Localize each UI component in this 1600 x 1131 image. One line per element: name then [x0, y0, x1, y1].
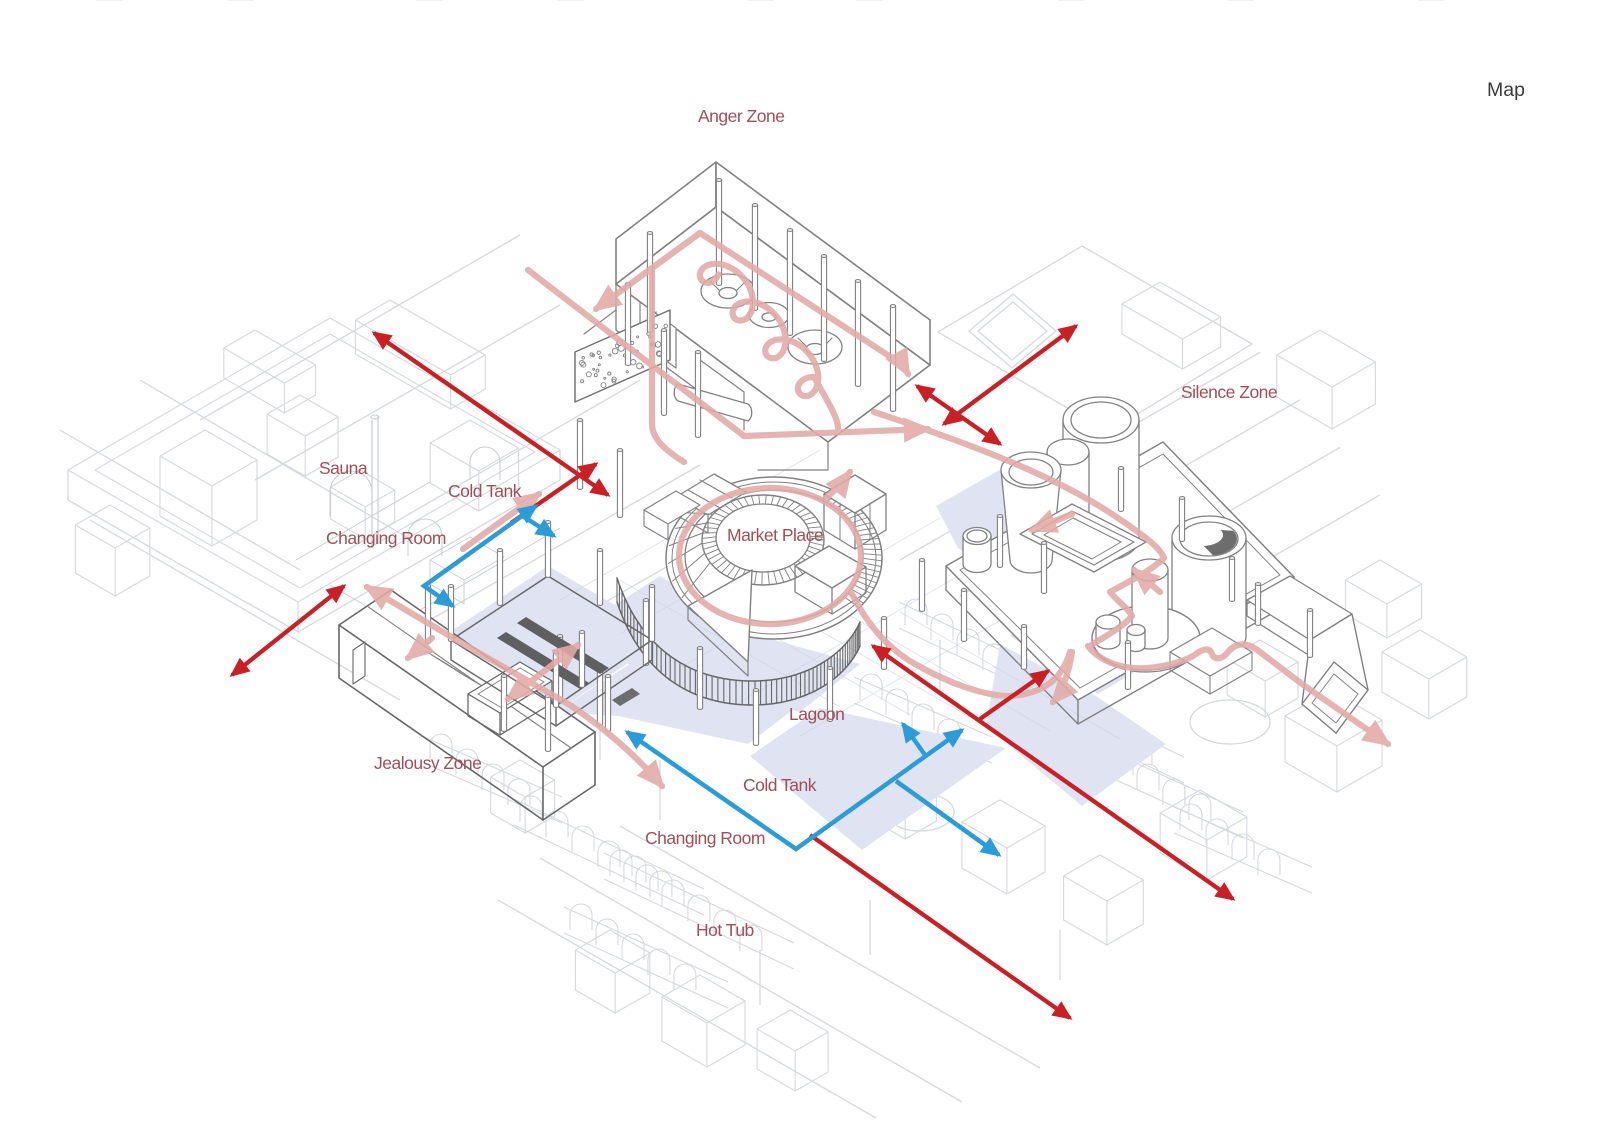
svg-text:Map: Map — [1487, 79, 1525, 101]
svg-text:Changing Room: Changing Room — [326, 528, 446, 548]
svg-text:Lagoon: Lagoon — [789, 704, 844, 724]
svg-text:Hot Tub: Hot Tub — [696, 920, 754, 940]
svg-text:Sauna: Sauna — [319, 458, 368, 478]
svg-text:Cold Tank: Cold Tank — [743, 775, 817, 795]
svg-text:Anger Zone: Anger Zone — [698, 106, 784, 126]
svg-text:Cold Tank: Cold Tank — [448, 481, 522, 501]
svg-text:Jealousy Zone: Jealousy Zone — [374, 753, 481, 773]
svg-text:Silence Zone: Silence Zone — [1181, 382, 1277, 402]
svg-text:Changing Room: Changing Room — [645, 828, 765, 848]
svg-text:Market Place: Market Place — [727, 525, 823, 545]
